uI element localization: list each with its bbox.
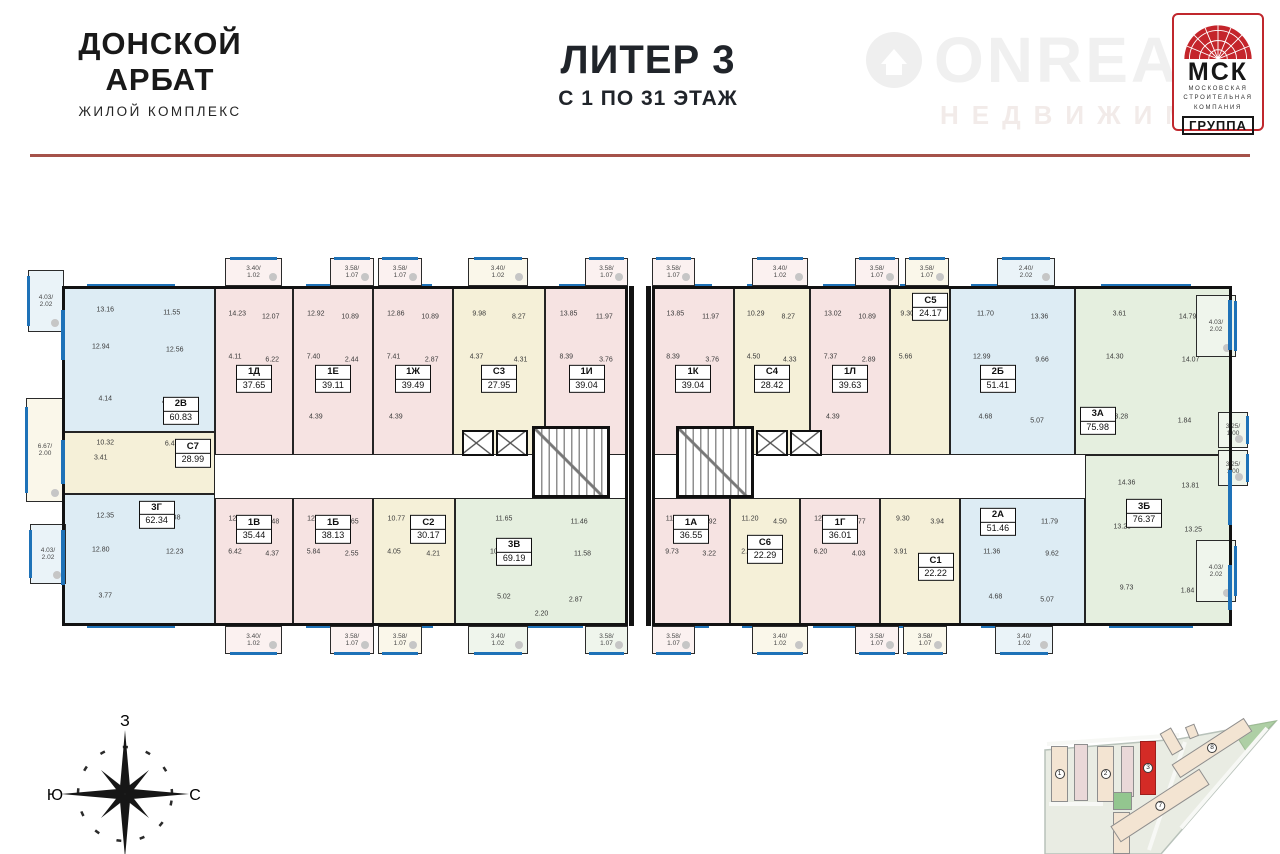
apartment-label: 2В60.83 <box>163 397 199 425</box>
room-area-value: 10.29 <box>747 310 765 317</box>
apartment-area: 39.63 <box>833 379 867 392</box>
balcony: 3.58/1.07 <box>652 258 695 286</box>
expansion-joint <box>629 286 634 626</box>
apartment-id: 3Б <box>1127 500 1161 513</box>
balcony: 3.40/1.02 <box>225 626 282 654</box>
balcony-furniture <box>361 273 369 281</box>
apartment-area: 30.17 <box>411 529 445 542</box>
divider-line <box>30 154 1250 157</box>
window-strip <box>1228 565 1232 610</box>
apartment-label: С524.17 <box>912 293 948 321</box>
room-area-value: 14.79 <box>1179 314 1197 321</box>
balcony-area-label: 2.00 <box>39 450 52 457</box>
site-building-current: 3 <box>1140 741 1156 795</box>
room-area-value: 12.07 <box>262 314 280 321</box>
balcony-area-label: 3.40/ <box>773 633 787 640</box>
balcony-area-label: 1.07 <box>667 272 680 279</box>
room-area-value: 9.62 <box>1045 551 1059 558</box>
room-area-value: 9.98 <box>472 310 486 317</box>
room-area-value: 4.68 <box>979 414 993 421</box>
balcony-area-label: 1.07 <box>919 640 932 647</box>
apartment-id: С6 <box>748 536 782 549</box>
apartment-label: С428.42 <box>754 365 790 393</box>
balcony: 4.03/2.02 <box>28 270 64 332</box>
balcony-furniture <box>886 273 894 281</box>
msk-logo: МСК МОСКОВСКАЯ СТРОИТЕЛЬНАЯ КОМПАНИЯ ГРУ… <box>1172 13 1264 131</box>
room-area-value: 11.20 <box>742 516 759 523</box>
compass-west-label: З <box>120 714 130 730</box>
room-area-value: 11.70 <box>977 310 994 317</box>
apartment-id: 1Ж <box>396 366 430 379</box>
balcony-area-label: 1.02 <box>492 272 505 279</box>
balcony-area-label: 3.58/ <box>393 265 407 272</box>
balcony-area-label: 3.58/ <box>870 265 884 272</box>
apartment-block: 9.303.943.91С122.22 <box>880 498 960 626</box>
apartment-area: 69.19 <box>497 552 531 565</box>
room-area-value: 9.73 <box>665 548 679 555</box>
room-area-value: 4.39 <box>389 414 403 421</box>
room-area-value: 14.07 <box>1182 357 1200 364</box>
balcony-furniture <box>51 489 59 497</box>
apartment-block: 12.9210.897.402.444.391Е39.11 <box>293 286 373 455</box>
liter-title: ЛИТЕР 3 <box>458 38 838 83</box>
apartment-block: 12.8610.897.412.874.391Ж39.49 <box>373 286 453 455</box>
elevator <box>496 430 528 456</box>
site-building: 1 <box>1051 746 1068 802</box>
apartment-block: 12.9911.7911.369.624.685.072А51.46 <box>960 498 1085 626</box>
room-area-value: 7.40 <box>307 354 321 361</box>
apartment-label: 2А51.46 <box>980 508 1016 536</box>
room-area-value: 4.37 <box>470 354 484 361</box>
apartment-label: 3Б76.37 <box>1126 499 1162 527</box>
room-area-value: 3.94 <box>930 518 944 525</box>
compass-north-label: С <box>189 787 201 804</box>
site-building: 2 <box>1097 746 1114 802</box>
room-area-value: 10.89 <box>341 314 359 321</box>
apartment-label: 1В35.44 <box>236 515 272 543</box>
room-area-value: 12.86 <box>387 310 405 317</box>
room-area-value: 12.23 <box>166 549 184 556</box>
balcony-area-label: 3.58/ <box>345 633 359 640</box>
room-area-value: 3.76 <box>599 357 613 364</box>
room-area-value: 4.05 <box>387 548 401 555</box>
apartment-id: 2Б <box>981 366 1015 379</box>
balcony-furniture <box>269 641 277 649</box>
room-area-value: 9.30 <box>896 516 910 523</box>
balcony-furniture <box>682 273 690 281</box>
balcony-area-label: 2.02 <box>42 554 55 561</box>
apartment-label: 3В69.19 <box>496 538 532 566</box>
apartment-block: 12.9211.776.204.031Г36.01 <box>800 498 880 626</box>
room-area-value: 11.36 <box>983 548 1000 555</box>
balcony-furniture <box>53 571 61 579</box>
stairwell-left <box>532 426 610 498</box>
balcony-furniture <box>1040 641 1048 649</box>
apartment-area: 28.99 <box>176 453 210 466</box>
room-area-value: 2.87 <box>425 357 439 364</box>
msk-group-label: ГРУППА <box>1182 116 1254 135</box>
window-strip <box>1109 624 1193 628</box>
balcony-area-label: 1.02 <box>774 272 787 279</box>
balcony: 3.58/1.07 <box>378 626 422 654</box>
room-area-value: 8.27 <box>781 314 795 321</box>
balcony-area-label: 3.40/ <box>491 633 505 640</box>
apartment-id: 2А <box>981 509 1015 522</box>
window-strip <box>1101 284 1191 288</box>
apartment-id: 1Д <box>237 366 271 379</box>
room-area-value: 1.84 <box>1181 588 1195 595</box>
apartment-area: 39.04 <box>570 379 604 392</box>
apartment-id: 2В <box>164 398 198 411</box>
balcony: 3.58/1.07 <box>330 626 374 654</box>
apartment-id: С1 <box>919 554 953 567</box>
apartment-label: С622.29 <box>747 535 783 563</box>
room-area-value: 13.16 <box>97 307 115 314</box>
balcony-area-label: 3.40/ <box>246 633 260 640</box>
room-area-value: 12.35 <box>97 512 115 519</box>
room-area-value: 14.30 <box>1106 354 1124 361</box>
window-strip <box>61 310 65 360</box>
room-area-value: 6.42 <box>228 548 242 555</box>
room-area-value: 5.02 <box>497 594 511 601</box>
room-area-value: 13.85 <box>667 310 685 317</box>
room-area-value: 10.89 <box>421 314 439 321</box>
balcony-furniture <box>615 273 623 281</box>
apartment-id: 3В <box>497 539 531 552</box>
balcony-furniture <box>51 319 59 327</box>
apartment-area: 39.11 <box>316 379 350 392</box>
balcony-area-label: 2.02 <box>1210 326 1223 333</box>
balcony-furniture <box>795 273 803 281</box>
apartment-area: 27.95 <box>482 379 516 392</box>
apartment-block: 11.6110.929.733.221А36.55 <box>652 498 730 626</box>
balcony: 3.40/1.02 <box>752 626 808 654</box>
balcony-area-label: 1.07 <box>871 640 884 647</box>
apartment-area: 22.29 <box>748 549 782 562</box>
balcony-area-label: 4.03/ <box>1209 319 1223 326</box>
apartment-area: 51.46 <box>981 521 1015 534</box>
room-area-value: 12.56 <box>166 347 184 354</box>
room-area-value: 4.50 <box>773 518 787 525</box>
room-area-value: 11.65 <box>495 516 512 523</box>
apartment-id: 1А <box>674 516 708 529</box>
room-area-value: 7.41 <box>387 354 401 361</box>
apartment-label: С230.17 <box>410 515 446 543</box>
balcony-area-label: 3.25/ <box>1226 423 1240 430</box>
room-area-value: 6.22 <box>265 357 279 364</box>
room-area-value: 3.61 <box>1113 310 1127 317</box>
room-area-value: 13.81 <box>1182 483 1200 490</box>
apartment-block: 12.9711.655.842.551Б38.13 <box>293 498 373 626</box>
apartment-block: 9.303.755.66С524.17 <box>890 286 950 455</box>
room-area-value: 8.39 <box>559 354 573 361</box>
room-area-value: 12.94 <box>92 344 110 351</box>
apartment-id: С4 <box>755 366 789 379</box>
room-area-value: 6.20 <box>814 548 828 555</box>
apartment-label: 3А75.98 <box>1080 406 1116 434</box>
apartment-id: 1Б <box>316 516 350 529</box>
balcony-furniture <box>936 273 944 281</box>
complex-name-line1: ДОНСКОЙ <box>60 26 260 62</box>
elevator <box>462 430 494 456</box>
room-area-value: 10.77 <box>388 516 406 523</box>
msk-abbr: МСК <box>1174 60 1262 85</box>
room-area-value: 13.36 <box>1031 314 1049 321</box>
window-strip <box>1228 470 1232 525</box>
site-building <box>1121 746 1134 797</box>
room-area-value: 4.03 <box>852 551 866 558</box>
balcony-furniture <box>361 641 369 649</box>
balcony: 3.58/1.07 <box>905 258 949 286</box>
balcony: 3.58/1.07 <box>585 626 628 654</box>
room-area-value: 10.32 <box>97 439 115 446</box>
room-area-value: 11.55 <box>163 309 180 316</box>
balcony-area-label: 1.07 <box>346 272 359 279</box>
room-area-value: 12.92 <box>307 310 325 317</box>
room-area-value: 4.31 <box>514 357 528 364</box>
apartment-block: 14.2312.074.116.221Д37.65 <box>215 286 293 455</box>
apartment-block: 12.1511.486.424.371В35.44 <box>215 498 293 626</box>
balcony: 3.58/1.07 <box>585 258 628 286</box>
balcony-area-label: 2.02 <box>40 301 53 308</box>
balcony-area-label: 4.03/ <box>41 547 55 554</box>
apartment-label: 2Б51.41 <box>980 365 1016 393</box>
apartment-area: 36.55 <box>674 529 708 542</box>
apartment-id: 3Г <box>140 501 174 514</box>
balcony-area-label: 3.58/ <box>920 265 934 272</box>
balcony-area-label: 3.40/ <box>491 265 505 272</box>
apartment-id: 1Г <box>823 516 857 529</box>
balcony-furniture <box>409 273 417 281</box>
apartment-label: 1Ж39.49 <box>395 365 431 393</box>
site-building-number: 2 <box>1101 769 1111 779</box>
apartment-label: 1Л39.63 <box>832 365 868 393</box>
balcony-area-label: 6.67/ <box>38 443 52 450</box>
room-area-value: 8.39 <box>666 354 680 361</box>
balcony-area-label: 1.07 <box>600 272 613 279</box>
room-area-value: 4.11 <box>228 354 241 361</box>
room-area-value: 4.21 <box>426 551 440 558</box>
balcony-area-label: 3.58/ <box>918 633 932 640</box>
apartment-id: С2 <box>411 516 445 529</box>
complex-logo: ДОНСКОЙ АРБАТ ЖИЛОЙ КОМПЛЕКС <box>60 26 260 119</box>
site-plan-minimap: 123478 <box>1033 716 1280 854</box>
msk-line: МОСКОВСКАЯ <box>1174 85 1262 94</box>
room-area-value: 10.89 <box>858 314 876 321</box>
expansion-joint <box>646 286 651 626</box>
room-area-value: 4.14 <box>98 396 112 403</box>
floorplan-page: ДОНСКОЙ АРБАТ ЖИЛОЙ КОМПЛЕКС ЛИТЕР 3 С 1… <box>0 0 1280 854</box>
complex-name-line2: АРБАТ <box>60 62 260 98</box>
apartment-label: 1А36.55 <box>673 515 709 543</box>
apartment-area: 39.04 <box>676 379 710 392</box>
msk-line: КОМПАНИЯ <box>1174 104 1262 113</box>
apartment-id: 1В <box>237 516 271 529</box>
room-area-value: 13.85 <box>560 310 578 317</box>
balcony: 3.58/1.07 <box>652 626 695 654</box>
room-area-value: 4.37 <box>265 551 279 558</box>
apartment-block: 13.1611.5512.9412.564.144.462В60.83 <box>62 286 215 432</box>
apartment-area: 75.98 <box>1081 420 1115 433</box>
balcony-furniture <box>409 641 417 649</box>
balcony-furniture <box>515 273 523 281</box>
balcony-area-label: 1.02 <box>774 640 787 647</box>
balcony-area-label: 3.58/ <box>599 265 613 272</box>
balcony-area-label: 1.02 <box>247 640 260 647</box>
balcony-area-label: 3.40/ <box>773 265 787 272</box>
balcony-area-label: 1.07 <box>346 640 359 647</box>
balcony: 3.40/1.02 <box>225 258 282 286</box>
apartment-label: 1Б38.13 <box>315 515 351 543</box>
balcony-area-label: 1.07 <box>600 640 613 647</box>
msk-line: СТРОИТЕЛЬНАЯ <box>1174 94 1262 103</box>
room-area-value: 11.58 <box>574 551 591 558</box>
stairwell-right <box>676 426 754 498</box>
window-strip <box>87 284 175 288</box>
room-area-value: 12.80 <box>92 546 110 553</box>
apartment-area: 62.34 <box>140 514 174 527</box>
apartment-area: 37.65 <box>237 379 271 392</box>
room-area-value: 4.39 <box>309 414 323 421</box>
balcony: 3.58/1.07 <box>903 626 947 654</box>
balcony: 2.40/2.02 <box>997 258 1055 286</box>
room-area-value: 2.20 <box>535 610 549 617</box>
window-strip <box>61 530 65 585</box>
room-area-value: 4.39 <box>826 414 840 421</box>
balcony-area-label: 3.58/ <box>666 633 680 640</box>
room-area-value: 11.97 <box>596 314 613 321</box>
balcony-area-label: 3.58/ <box>870 633 884 640</box>
elevator <box>756 430 788 456</box>
balcony: 3.58/1.07 <box>855 626 899 654</box>
apartment-area: 22.22 <box>919 567 953 580</box>
apartment-block: 11.7013.3612.999.664.685.072Б51.41 <box>950 286 1075 455</box>
site-building-number: 3 <box>1143 763 1153 773</box>
balcony-furniture <box>886 641 894 649</box>
apartment-area: 35.44 <box>237 529 271 542</box>
apartment-block: 12.3512.3812.8012.233.773Г62.34 <box>62 494 215 626</box>
elevator <box>790 430 822 456</box>
balcony-area-label: 1.02 <box>1018 640 1031 647</box>
page-title: ЛИТЕР 3 С 1 ПО 31 ЭТАЖ <box>458 38 838 111</box>
balcony-area-label: 3.58/ <box>345 265 359 272</box>
apartment-id: 3А <box>1081 407 1115 420</box>
balcony-furniture <box>615 641 623 649</box>
room-area-value: 3.77 <box>98 593 112 600</box>
balcony: 3.58/1.07 <box>330 258 374 286</box>
balcony-area-label: 2.02 <box>1210 571 1223 578</box>
room-area-value: 3.41 <box>94 455 108 462</box>
room-area-value: 4.68 <box>989 594 1003 601</box>
balcony: 3.40/1.02 <box>468 626 528 654</box>
balcony-area-label: 2.40/ <box>1019 265 1033 272</box>
balcony-area-label: 1.07 <box>921 272 934 279</box>
balcony-area-label: 3.58/ <box>599 633 613 640</box>
apartment-area: 28.42 <box>755 379 789 392</box>
balcony-furniture <box>1235 473 1243 481</box>
room-area-value: 11.79 <box>1041 518 1058 525</box>
room-area-value: 9.66 <box>1035 357 1049 364</box>
room-area-value: 8.27 <box>512 314 526 321</box>
room-area-value: 3.22 <box>702 551 716 558</box>
room-area-value: 13.02 <box>824 310 842 317</box>
apartment-label: С122.22 <box>918 553 954 581</box>
balcony-area-label: 3.58/ <box>393 633 407 640</box>
room-area-value: 5.84 <box>307 548 321 555</box>
apartment-label: 1Д37.65 <box>236 365 272 393</box>
balcony-furniture <box>1042 273 1050 281</box>
balcony: 3.40/1.02 <box>752 258 808 286</box>
room-area-value: 2.89 <box>862 357 876 364</box>
apartment-id: 1И <box>570 366 604 379</box>
compass-rose: З Ю С <box>45 714 205 854</box>
window-strip <box>61 440 65 484</box>
balcony: 3.58/1.07 <box>855 258 899 286</box>
balcony-area-label: 1.07 <box>394 640 407 647</box>
room-area-value: 12.99 <box>973 354 991 361</box>
apartment-block: 13.0210.897.372.894.391Л39.63 <box>810 286 890 455</box>
site-building <box>1074 744 1088 801</box>
window-strip <box>1228 300 1232 350</box>
apartment-block: 10.326.423.41С728.99 <box>62 432 215 494</box>
balcony-area-label: 4.03/ <box>39 294 53 301</box>
balcony-area-label: 3.40/ <box>246 265 260 272</box>
balcony-furniture <box>515 641 523 649</box>
balcony-area-label: 1.07 <box>871 272 884 279</box>
site-building-number: 7 <box>1155 801 1165 811</box>
apartment-label: 1И39.04 <box>569 365 605 393</box>
apartment-block: 11.6511.4610.8611.585.022.872.203В69.19 <box>455 498 628 626</box>
balcony: 3.58/1.07 <box>378 258 422 286</box>
room-area-value: 3.91 <box>894 548 908 555</box>
complex-subtitle: ЖИЛОЙ КОМПЛЕКС <box>60 104 260 119</box>
room-area-value: 4.33 <box>783 357 797 364</box>
room-area-value: 2.87 <box>569 596 583 603</box>
balcony-furniture <box>269 273 277 281</box>
room-area-value: 9.73 <box>1120 584 1134 591</box>
room-area-value: 11.46 <box>571 518 588 525</box>
apartment-id: 1К <box>676 366 710 379</box>
apartment-area: 39.49 <box>396 379 430 392</box>
balcony: 3.40/1.02 <box>468 258 528 286</box>
site-building-number: 8 <box>1207 743 1217 753</box>
balcony: 3.25/1.00 <box>1218 450 1248 486</box>
balcony-area-label: 3.58/ <box>666 265 680 272</box>
balcony-furniture <box>682 641 690 649</box>
balcony-area-label: 1.02 <box>492 640 505 647</box>
window-strip <box>813 624 858 628</box>
balcony-furniture <box>795 641 803 649</box>
apartment-id: 1Е <box>316 366 350 379</box>
apartment-area: 51.41 <box>981 379 1015 392</box>
room-area-value: 2.44 <box>345 357 359 364</box>
apartment-label: 1Е39.11 <box>315 365 351 393</box>
compass-south-label: Ю <box>47 787 63 804</box>
room-area-value: 3.76 <box>705 357 719 364</box>
apartment-id: С7 <box>176 440 210 453</box>
room-area-value: 5.07 <box>1040 596 1054 603</box>
balcony-area-label: 3.25/ <box>1226 461 1240 468</box>
apartment-label: 1К39.04 <box>675 365 711 393</box>
apartment-area: 60.83 <box>164 411 198 424</box>
balcony-area-label: 3.40/ <box>1017 633 1031 640</box>
balcony-furniture <box>1235 435 1243 443</box>
room-area-value: 4.50 <box>747 354 761 361</box>
balcony-area-label: 4.03/ <box>1209 564 1223 571</box>
floors-subtitle: С 1 ПО 31 ЭТАЖ <box>458 87 838 111</box>
room-area-value: 13.25 <box>1185 527 1203 534</box>
balcony: 3.40/1.02 <box>995 626 1053 654</box>
